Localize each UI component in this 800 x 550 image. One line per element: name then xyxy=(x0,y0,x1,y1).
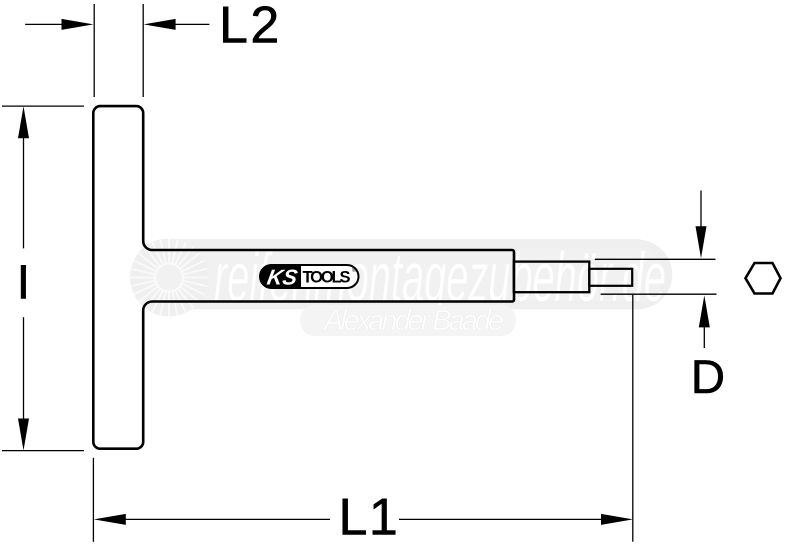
svg-text:Alexander Baade: Alexander Baade xyxy=(322,305,504,337)
svg-text:L1: L1 xyxy=(339,489,400,547)
svg-text:D: D xyxy=(691,351,725,404)
svg-text:®: ® xyxy=(352,267,357,274)
svg-text:TOOLS: TOOLS xyxy=(303,269,351,287)
svg-text:L2: L2 xyxy=(219,0,282,54)
svg-text:KS: KS xyxy=(265,265,300,290)
svg-text:I: I xyxy=(17,255,30,309)
